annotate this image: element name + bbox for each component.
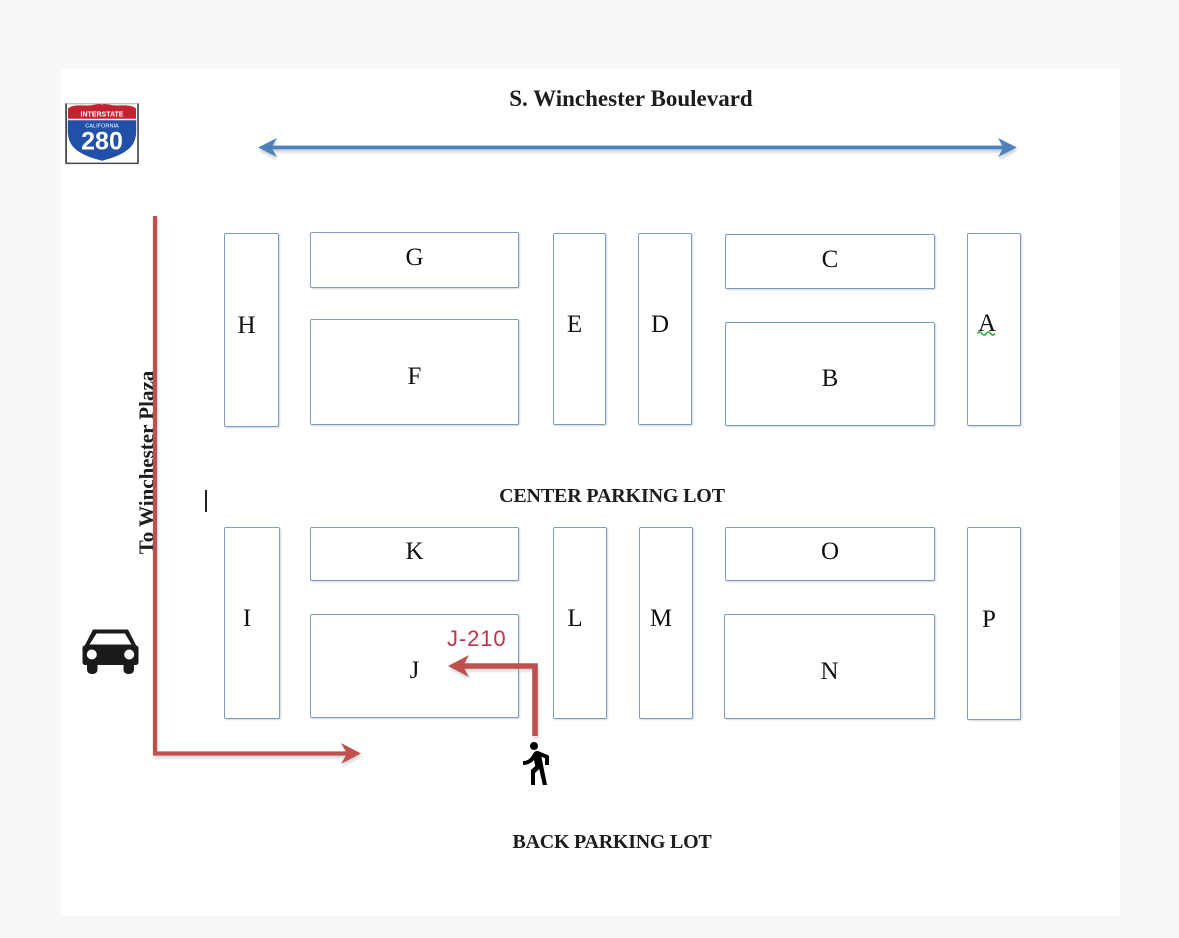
- svg-text:INTERSTATE: INTERSTATE: [81, 111, 124, 118]
- svg-text:280: 280: [81, 127, 123, 155]
